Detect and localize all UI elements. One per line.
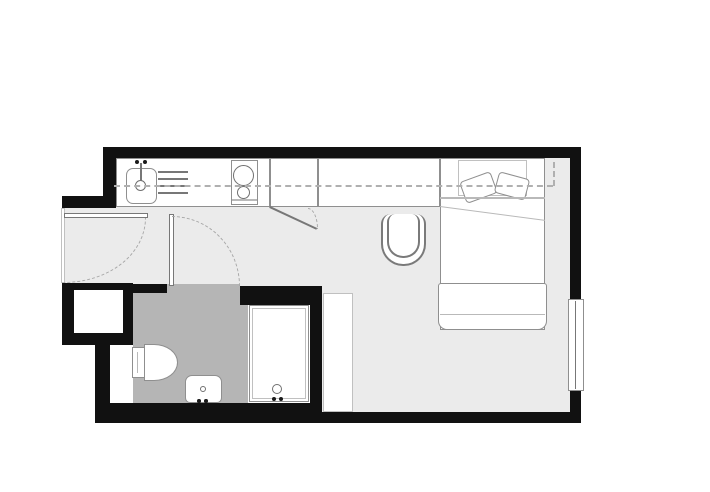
sink-drainer-line-1 <box>158 171 188 173</box>
washbasin-tap-right <box>204 399 208 403</box>
wall-bottom-bath <box>95 403 322 423</box>
overhead-cabinet-dashed-line <box>114 185 553 187</box>
shower-knob-right <box>279 397 283 401</box>
window-right <box>568 299 584 391</box>
wall-shower-right <box>310 286 322 403</box>
wall-shaft-niche <box>74 290 123 333</box>
wall-left-column <box>95 345 110 405</box>
washbasin-drain <box>200 386 206 392</box>
sink-drainer-line-4 <box>158 192 188 194</box>
shower-drain <box>272 384 282 394</box>
wall-bottom-main <box>310 412 581 423</box>
wall-top <box>103 147 581 158</box>
sink-faucet-knob-right <box>143 160 147 164</box>
shower-knob-left <box>272 397 276 401</box>
floorplan-canvas <box>0 0 710 492</box>
wall-entry-head <box>62 196 116 208</box>
bed-foot-bench <box>438 283 547 330</box>
desk-counter <box>318 158 440 207</box>
wall-right-upper <box>570 147 581 301</box>
stove-base-line <box>232 199 257 201</box>
stove-burner-small <box>237 186 250 199</box>
stove-burner-large <box>233 165 254 186</box>
toilet-tank-line <box>137 352 138 373</box>
wall-bath-top-left <box>133 284 167 293</box>
sink-drainer-line-2 <box>158 178 188 180</box>
washbasin-tap-left <box>197 399 201 403</box>
sink-faucet-knob-left <box>135 160 139 164</box>
bathroom-side-cabinet <box>323 293 353 412</box>
overhead-cabinet-dashed-end <box>553 162 555 186</box>
window-glazing-line <box>575 301 576 389</box>
bed-blanket-edge <box>440 197 545 199</box>
bed-foot-bench-line <box>440 314 545 315</box>
desk-chair-inner <box>387 214 420 258</box>
wall-recess-lower <box>110 345 133 403</box>
tall-cabinet <box>270 158 318 207</box>
